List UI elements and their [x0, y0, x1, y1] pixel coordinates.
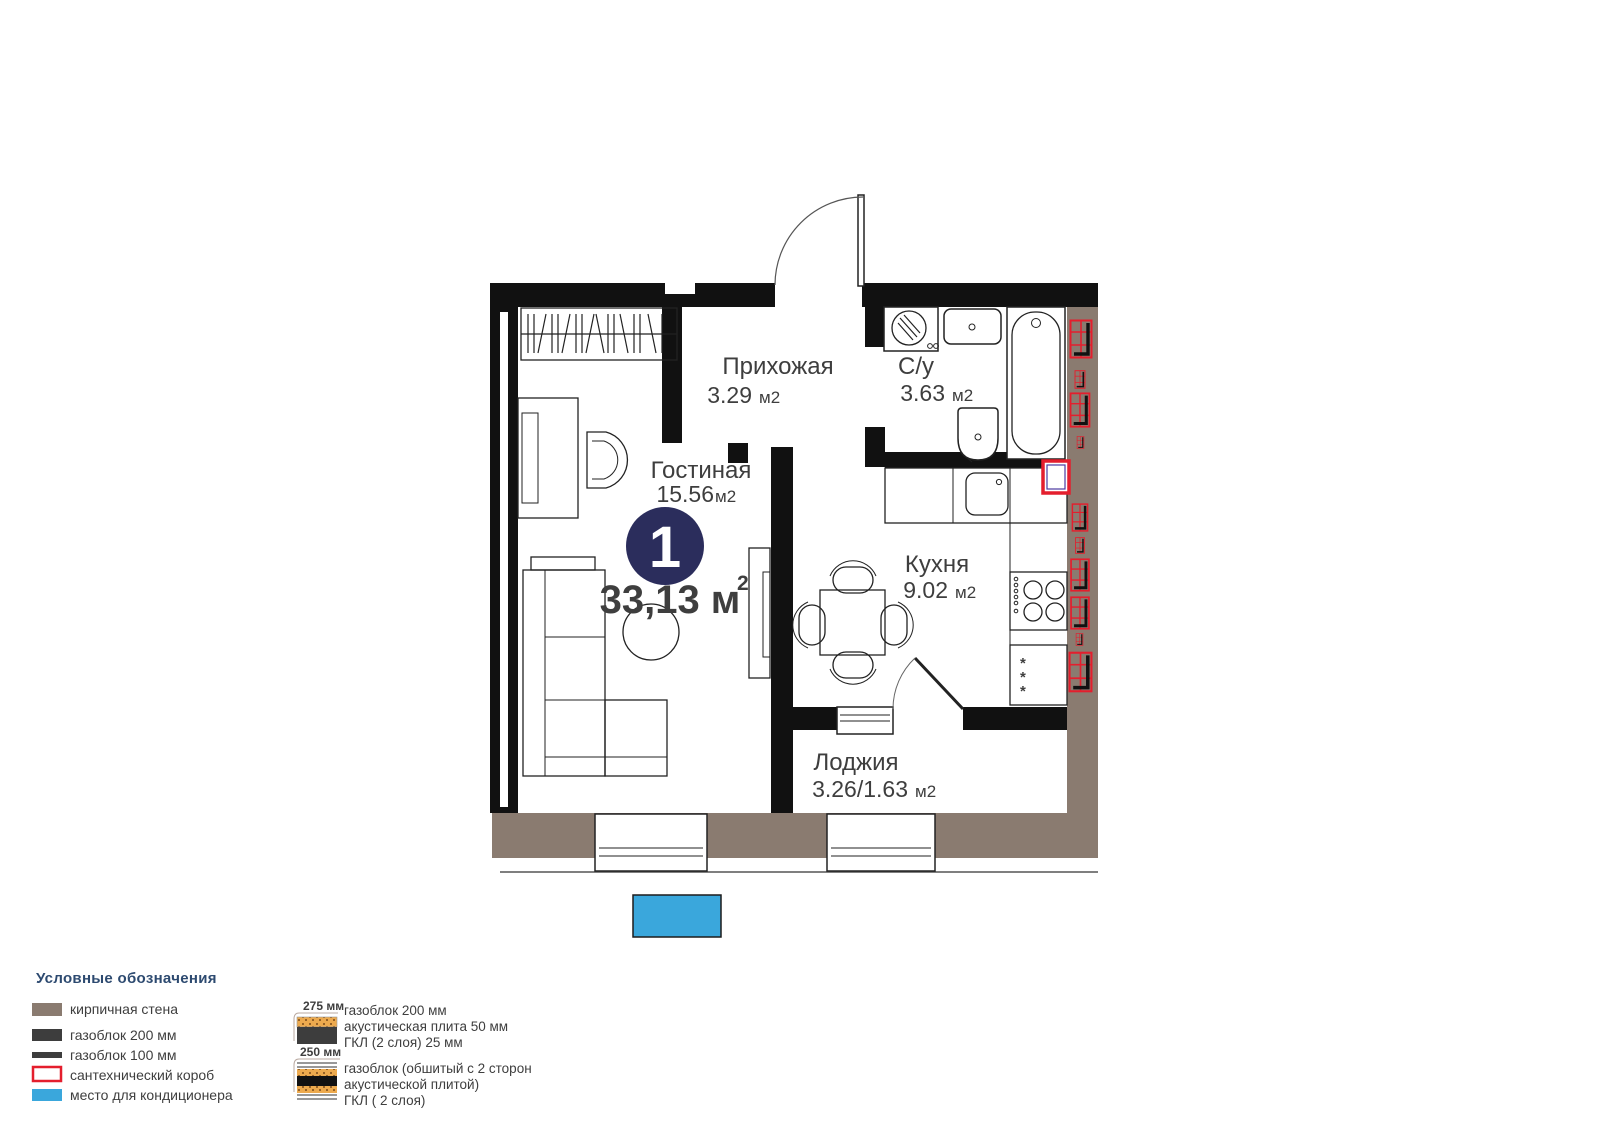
svg-text:место для кондиционера: место для кондиционера: [70, 1087, 233, 1103]
loggia-door: [893, 658, 963, 709]
svg-text:газоблок 100 мм: газоблок 100 мм: [70, 1047, 177, 1063]
legend-swatch-gasblock-200: [32, 1029, 62, 1041]
legend-swatch-brick: [32, 1003, 62, 1016]
svg-text:275 мм: 275 мм: [303, 999, 344, 1013]
floorplan-page: * * * Прихожая 3.29 м2: [0, 0, 1600, 1131]
svg-text:газоблок 200 мм: газоблок 200 мм: [344, 1003, 447, 1018]
kitchen-area-unit: м2: [955, 583, 976, 602]
total-area: 33,13 м: [600, 578, 741, 622]
svg-text:газоблок (обшитый с 2 сторон: газоблок (обшитый с 2 сторон: [344, 1061, 532, 1076]
kitchen-name: Кухня: [905, 551, 969, 578]
svg-text:акустической плитой): акустической плитой): [344, 1077, 479, 1092]
fridge: * * *: [1010, 645, 1067, 705]
dining-set: [793, 561, 913, 684]
loggia-area-unit: м2: [915, 782, 936, 801]
svg-text:1: 1: [649, 515, 681, 580]
legend-title: Условные обозначения: [36, 970, 217, 987]
entrance-door: [775, 195, 864, 286]
living-area: 15.56: [656, 481, 714, 507]
hallway-area-unit: м2: [759, 388, 780, 407]
unit-badge: 1: [626, 507, 704, 585]
total-area-sup: 2: [737, 572, 749, 595]
svg-text:ГКЛ (2 слоя) 25 мм: ГКЛ (2 слоя) 25 мм: [344, 1035, 463, 1050]
legend-swatch-250: [297, 1063, 337, 1099]
svg-text:акустическая плита 50 мм: акустическая плита 50 мм: [344, 1019, 508, 1034]
desk-chair: [587, 432, 627, 488]
legend-swatch-gasblock-100: [32, 1052, 62, 1058]
legend-swatch-ac: [32, 1089, 62, 1101]
window-living: [595, 814, 707, 871]
hallway-area: 3.29: [707, 382, 752, 408]
svg-text:ГКЛ ( 2 слоя): ГКЛ ( 2 слоя): [344, 1093, 425, 1108]
wall-type-250: 250 мм газоблок (обшитый с 2 сторон акус…: [294, 1045, 532, 1108]
svg-text:250 мм: 250 мм: [300, 1045, 341, 1059]
bathroom-area-unit: м2: [952, 386, 973, 405]
bath-sink: [944, 309, 1001, 344]
legend-swatch-plumbing-box: [33, 1067, 61, 1081]
loggia-name: Лоджия: [813, 749, 898, 776]
desk: [518, 398, 578, 518]
ac-place: [633, 895, 721, 937]
loggia-sill-window: [837, 707, 893, 734]
stove: [1010, 572, 1067, 630]
bathroom-name: С/у: [898, 353, 934, 380]
bathtub: [1007, 307, 1065, 459]
floorplan-svg: * * * Прихожая 3.29 м2: [0, 0, 1600, 1131]
bathroom-area: 3.63: [900, 380, 945, 406]
wall-type-275: 275 мм газоблок 200 мм акустическая плит…: [294, 999, 508, 1050]
window-loggia: [827, 814, 935, 871]
living-name: Гостиная: [651, 457, 752, 484]
svg-text:газоблок 200 мм: газоблок 200 мм: [70, 1027, 177, 1043]
living-area-unit: м2: [715, 487, 736, 506]
loggia-area: 3.26/1.63: [812, 776, 908, 802]
wardrobe: [521, 308, 677, 360]
legend: Условные обозначения кирпичная стена газ…: [32, 970, 532, 1108]
plumbing-box: [1043, 461, 1069, 493]
svg-text:сантехнический короб: сантехнический короб: [70, 1067, 214, 1083]
washing-machine: [884, 307, 938, 351]
svg-text:*: *: [1020, 683, 1026, 700]
kitchen-area: 9.02: [903, 577, 948, 603]
toilet: [958, 408, 998, 462]
tv-stand: [749, 548, 770, 678]
hallway-name: Прихожая: [722, 353, 833, 380]
svg-text:кирпичная стена: кирпичная стена: [70, 1001, 178, 1017]
